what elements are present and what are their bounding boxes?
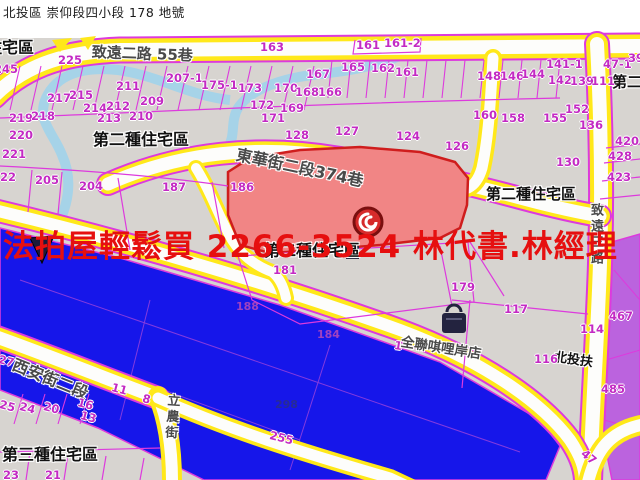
page-title: 北投區 崇仰段四小段 178 地號	[3, 2, 185, 21]
map-canvas[interactable]	[0, 0, 640, 480]
map-window: 北投區 崇仰段四小段 178 地號	[0, 0, 640, 480]
building-icon	[346, 246, 359, 259]
highlight-parcel-178[interactable]	[228, 147, 468, 253]
location-swirl-icon	[354, 208, 382, 236]
